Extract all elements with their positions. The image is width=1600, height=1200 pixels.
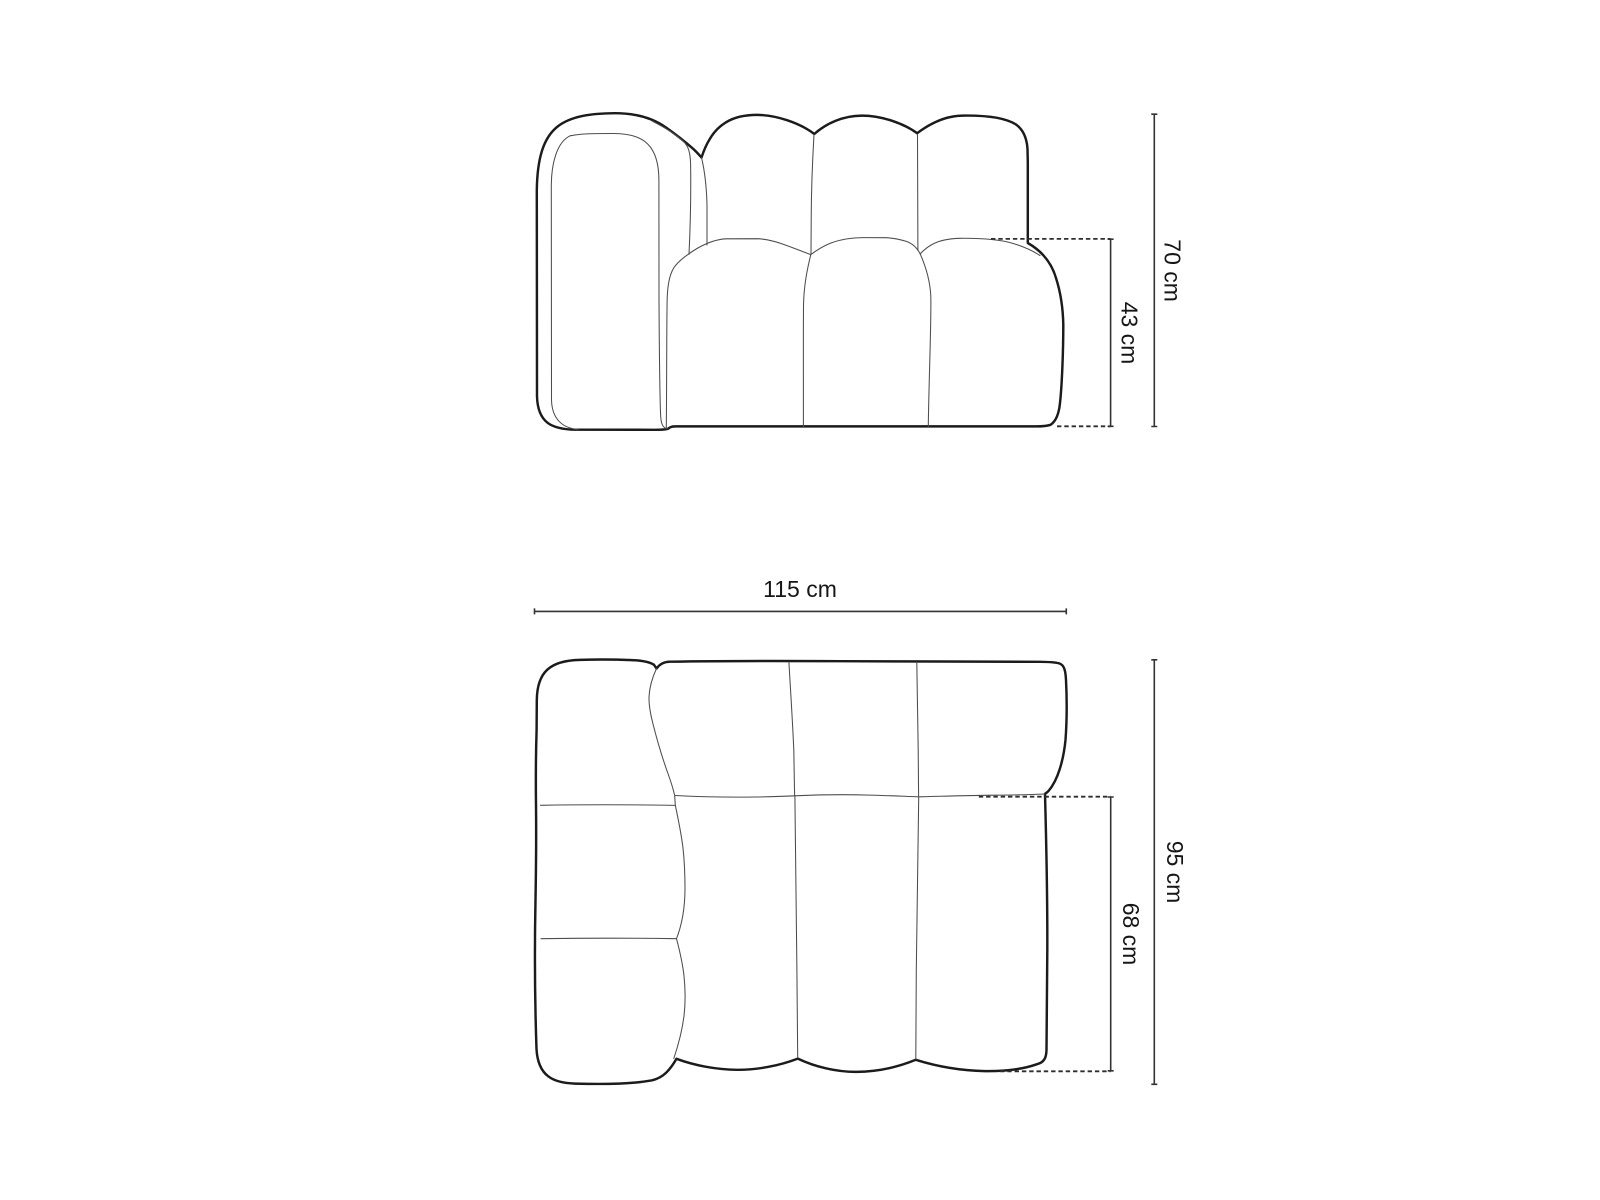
svg-text:43 cm: 43 cm [1117,302,1143,365]
svg-text:95 cm: 95 cm [1162,841,1188,904]
svg-text:115 cm: 115 cm [763,576,837,602]
svg-text:68 cm: 68 cm [1118,903,1144,966]
svg-text:70 cm: 70 cm [1159,239,1185,302]
